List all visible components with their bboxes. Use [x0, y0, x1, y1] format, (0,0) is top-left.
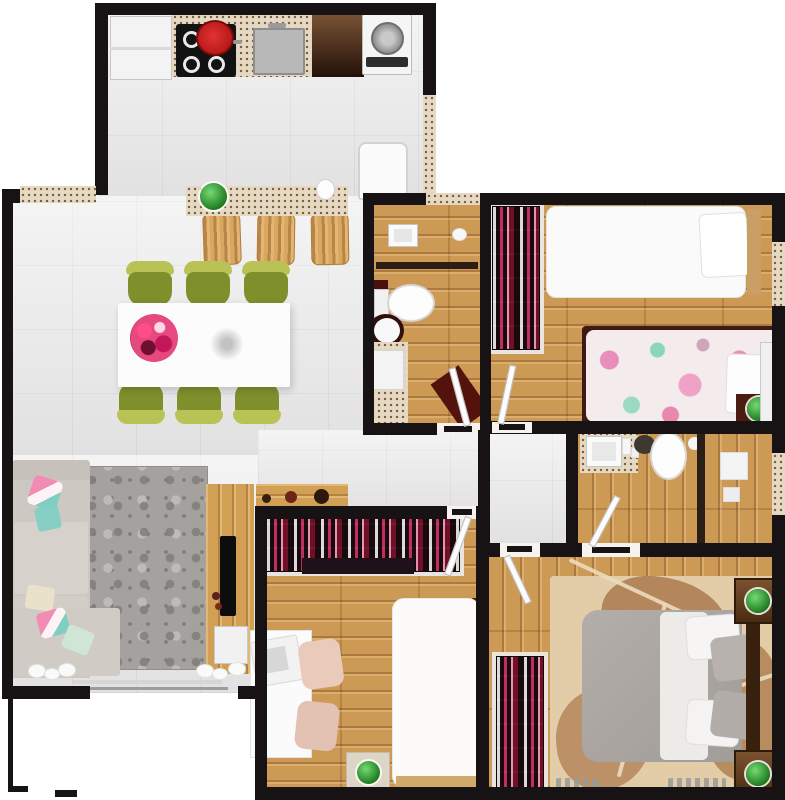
- curtain-puff-1: [28, 664, 46, 678]
- bar-stool-1: [202, 212, 242, 265]
- bed1-pillow: [698, 212, 749, 278]
- wall-bedroom1-top: [480, 193, 785, 205]
- sliding-door-rail-2: [80, 687, 228, 690]
- wall-bedroom2-top: [255, 506, 447, 519]
- wall-master-top-3: [640, 543, 785, 557]
- bedroom2-wardrobe-shelf: [302, 558, 414, 574]
- bed3-duvet: [392, 598, 480, 788]
- threshold-bedroom2-bar: [452, 509, 472, 515]
- threshold-bath1-bar: [444, 426, 472, 432]
- desk-chair-2: [294, 700, 341, 752]
- wall-top: [95, 3, 435, 15]
- desk-chair-1: [297, 637, 345, 690]
- bedroom1-wardrobe-clothes: [492, 206, 540, 350]
- wall-bath1-top: [374, 193, 426, 205]
- window-bedroom1-right: [772, 242, 785, 306]
- master-headboard: [746, 614, 760, 756]
- bath1-shelf-item: [452, 228, 467, 241]
- glass-vase: [210, 327, 244, 361]
- balcony-wall-bottom-1: [8, 786, 28, 792]
- bath1-towel-bar: [376, 262, 478, 269]
- tv-cabinet: [214, 626, 248, 664]
- wall-living-bottom-left: [2, 686, 90, 699]
- bath1-shower-tray: [372, 350, 404, 390]
- wall-left: [2, 189, 13, 699]
- wall-master-top-2: [540, 543, 582, 557]
- tv-decor-2: [215, 603, 222, 610]
- wall-bath1-left: [363, 193, 374, 434]
- bed1-headboard: [747, 209, 761, 295]
- curtain-puff-6: [228, 662, 246, 676]
- washer-panel: [366, 57, 408, 67]
- wall-bedroom1-left: [480, 193, 491, 433]
- master-nightstand-plant-2: [746, 762, 770, 786]
- threshold-bath2-bar: [592, 547, 630, 553]
- dark-cabinet: [312, 14, 364, 77]
- dining-chair-back-b2: [175, 410, 223, 424]
- window-bath1-top: [426, 193, 480, 205]
- master-nightstand-plant-1: [746, 589, 770, 613]
- bath1-sink-basin: [394, 229, 412, 242]
- kitchen-sink: [253, 28, 305, 75]
- washer-drum: [371, 22, 404, 55]
- wall-bedroom2-left: [255, 506, 267, 800]
- dining-chair-seat-t1: [128, 272, 172, 306]
- wall-bath1-bottom: [363, 423, 437, 435]
- sliding-door-rail-1: [72, 680, 222, 684]
- window-dining-left: [20, 186, 96, 203]
- wall-bedroom2-bottom: [255, 787, 489, 800]
- dining-chair-seat-t2: [186, 272, 230, 306]
- burner-3: [208, 56, 225, 73]
- bath2-sink-basin: [592, 442, 616, 461]
- island-plant: [200, 183, 227, 210]
- side-table-plant: [357, 761, 380, 784]
- window-bath2-right: [772, 453, 785, 515]
- dining-chair-back-b3: [233, 410, 281, 424]
- console-knob-2: [285, 491, 297, 503]
- burner-2: [183, 56, 200, 73]
- console-knob-3: [314, 489, 329, 504]
- console-knob-1: [262, 494, 271, 503]
- balcony-wall-left: [8, 699, 13, 791]
- island-kettle: [316, 179, 335, 200]
- sink-faucet: [268, 23, 286, 28]
- curtain-puff-4: [196, 664, 214, 678]
- floorplan-stage: [0, 0, 785, 800]
- entry-door: [358, 142, 408, 200]
- wall-bath2-left: [566, 430, 578, 556]
- red-pot: [196, 20, 234, 56]
- dining-chair-back-b1: [117, 410, 165, 424]
- balcony-wall-bottom-2: [55, 790, 77, 797]
- window-kitchen-right: [423, 95, 436, 195]
- curtain-puff-5: [212, 668, 228, 680]
- threshold-master-bar: [507, 546, 532, 552]
- wall-master-bottom: [476, 787, 785, 800]
- flower-bouquet: [130, 314, 178, 362]
- bath2-drain: [723, 487, 740, 502]
- curtain-puff-3: [58, 663, 76, 677]
- bar-stool-3: [311, 213, 350, 266]
- tv-decor-1: [212, 592, 220, 600]
- wall-bedroom2-right: [476, 506, 489, 800]
- sofa-pillow-3: [24, 584, 55, 612]
- bath2-toiletry-1: [622, 438, 631, 455]
- bath2-shower-partition: [697, 432, 705, 547]
- fridge-divider: [110, 47, 172, 50]
- sofa-cushion-1: [14, 522, 88, 594]
- master-wardrobe-clothes: [496, 656, 544, 796]
- floor-hall-tile-2: [488, 430, 578, 545]
- bath2-toilet: [650, 432, 687, 480]
- bath2-shower-head: [720, 452, 748, 480]
- dining-chair-seat-t3: [244, 272, 288, 306]
- sofa-pillow-2: [34, 504, 62, 532]
- bath1-bidet: [374, 318, 400, 343]
- threshold-bedroom1-bar: [499, 424, 525, 430]
- pot-handle: [233, 40, 242, 44]
- bar-stool-2: [257, 213, 296, 266]
- tv-screen: [220, 536, 236, 616]
- wall-kitchen-left: [95, 3, 108, 195]
